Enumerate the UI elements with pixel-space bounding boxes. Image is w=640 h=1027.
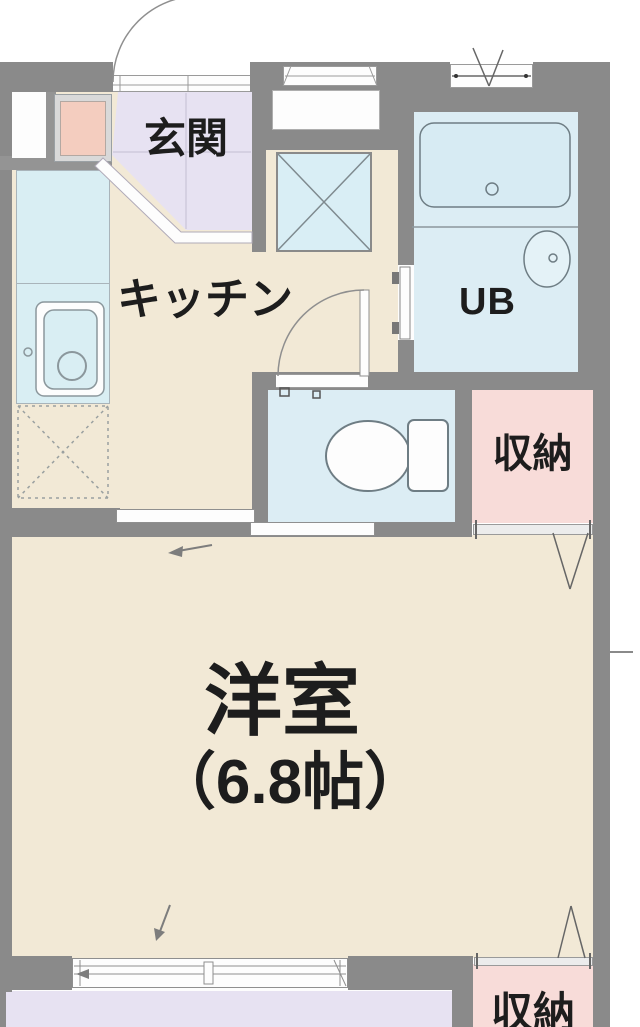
western-room-label: 洋室 [82, 662, 482, 740]
genkan-label: 玄関 [112, 118, 260, 160]
entrance-door-swing-arc [113, 0, 199, 82]
genkan-step [95, 158, 252, 243]
refrigerator-space [18, 406, 108, 498]
floor-plan: 玄関 キッチン UB 収納 洋室 （6.8帖） 収納 [0, 0, 640, 1027]
storage-upper-folding-door [476, 520, 590, 589]
storage-upper-label: 収納 [472, 434, 593, 474]
western-room-size-label: （6.8帖） [40, 752, 540, 814]
washbasin [524, 231, 570, 287]
bathtub [420, 123, 570, 207]
window-slide-arrow [154, 905, 170, 941]
storage-lower-folding-door [477, 906, 590, 969]
unit-bath-label: UB [425, 283, 550, 321]
toilet [280, 388, 448, 491]
ub-window-marks [452, 48, 531, 86]
sliding-door-arrow [168, 545, 212, 557]
ps-window-marks [283, 66, 377, 86]
kitchen-label: キッチン [90, 278, 320, 322]
balcony-window-details [74, 960, 346, 986]
storage-lower-label: 収納 [473, 992, 593, 1027]
unit-bath-door [392, 267, 410, 339]
washing-machine-x [278, 154, 370, 250]
linework-overlay [0, 0, 640, 1027]
